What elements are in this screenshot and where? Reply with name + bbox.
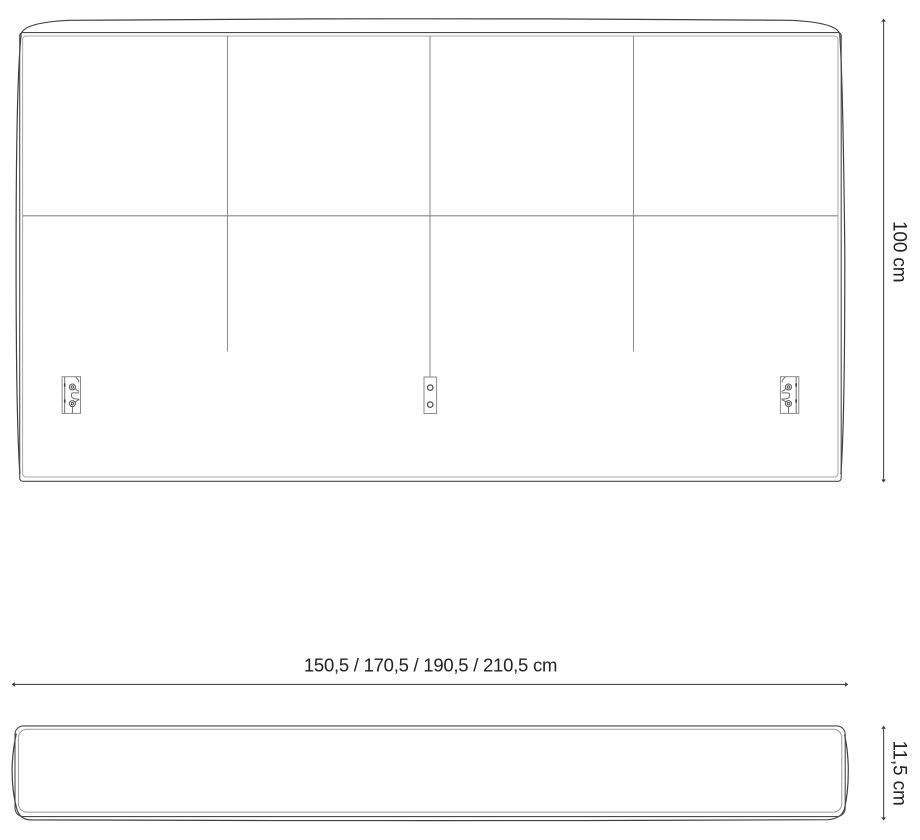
svg-text:150,5 / 170,5 / 190,5 / 210,5: 150,5 / 170,5 / 190,5 / 210,5 cm: [304, 655, 557, 676]
svg-text:11,5 cm: 11,5 cm: [889, 741, 910, 806]
svg-text:100 cm: 100 cm: [889, 221, 910, 282]
